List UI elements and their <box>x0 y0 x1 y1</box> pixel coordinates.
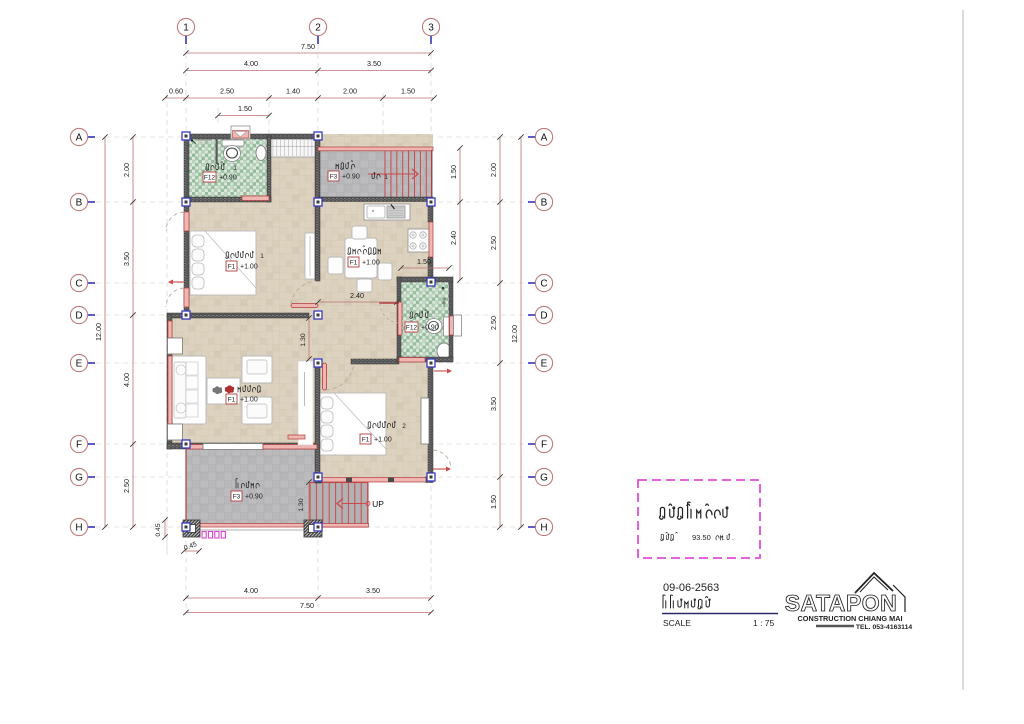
svg-text:B: B <box>76 197 83 208</box>
svg-text:C: C <box>75 278 82 289</box>
svg-text:1.50: 1.50 <box>238 104 252 113</box>
svg-text:D: D <box>540 310 547 321</box>
svg-text:3.50: 3.50 <box>122 252 131 266</box>
svg-text:2.40: 2.40 <box>350 291 364 300</box>
svg-text:C: C <box>540 278 547 289</box>
svg-text:A: A <box>76 132 83 143</box>
svg-text:3: 3 <box>428 22 434 33</box>
svg-text:F1: F1 <box>228 397 236 404</box>
svg-text:+0.90: +0.90 <box>245 494 263 501</box>
svg-text:1.50: 1.50 <box>401 87 415 96</box>
svg-text:1.50: 1.50 <box>417 257 431 266</box>
svg-text:+0.90: +0.90 <box>421 325 439 332</box>
svg-text:7.50: 7.50 <box>300 601 314 610</box>
svg-text:2.50: 2.50 <box>220 87 234 96</box>
svg-text:SCALE: SCALE <box>663 618 691 628</box>
svg-text:2.00: 2.00 <box>122 163 131 177</box>
svg-text:0.60: 0.60 <box>169 87 183 96</box>
svg-text:.: . <box>732 535 734 542</box>
svg-text:.: . <box>723 535 725 542</box>
svg-text:G: G <box>75 472 83 483</box>
svg-text:2: 2 <box>402 423 406 430</box>
svg-text:F12: F12 <box>406 325 418 332</box>
svg-text:G: G <box>540 472 548 483</box>
svg-text:4.00: 4.00 <box>244 59 258 68</box>
svg-text:1: 1 <box>384 174 388 181</box>
svg-text:F1: F1 <box>228 264 236 271</box>
svg-text:4.00: 4.00 <box>244 586 258 595</box>
svg-text:3.50: 3.50 <box>367 59 381 68</box>
svg-text:2.50: 2.50 <box>489 236 498 250</box>
svg-text:1.40: 1.40 <box>286 87 300 96</box>
svg-text:1.30: 1.30 <box>298 498 305 511</box>
svg-text:SATAPON: SATAPON <box>785 590 898 616</box>
svg-text:F: F <box>76 439 82 450</box>
svg-text:H: H <box>75 522 82 533</box>
svg-text:UP: UP <box>372 499 384 509</box>
svg-text:+1.00: +1.00 <box>240 264 258 271</box>
svg-text:3.50: 3.50 <box>489 397 498 411</box>
svg-text:+0.90: +0.90 <box>219 175 237 182</box>
svg-text:4.00: 4.00 <box>122 373 131 387</box>
svg-text:1.50: 1.50 <box>449 165 458 179</box>
svg-text:1 : 75: 1 : 75 <box>753 618 775 628</box>
svg-text:TEL. 053-4163114: TEL. 053-4163114 <box>856 624 913 631</box>
svg-text:2.50: 2.50 <box>122 479 131 493</box>
svg-text:CONSTRUCTION CHIANG MAI: CONSTRUCTION CHIANG MAI <box>798 614 903 623</box>
svg-text:09-06-2563: 09-06-2563 <box>663 582 719 594</box>
svg-text:+0.90: +0.90 <box>342 174 360 181</box>
svg-text:F3: F3 <box>233 494 241 501</box>
svg-text:F3: F3 <box>330 174 338 181</box>
svg-text:2: 2 <box>315 22 321 33</box>
svg-text:+1.00: +1.00 <box>362 260 380 267</box>
svg-text:F1: F1 <box>350 260 358 267</box>
svg-text:2.00: 2.00 <box>489 163 498 177</box>
svg-text:E: E <box>76 358 83 369</box>
svg-text:F: F <box>541 439 547 450</box>
svg-text:2.50: 2.50 <box>489 316 498 330</box>
svg-text:B: B <box>541 197 548 208</box>
svg-text:+1.00: +1.00 <box>374 437 392 444</box>
svg-text:1.30: 1.30 <box>300 333 307 346</box>
svg-text:F12: F12 <box>204 175 216 182</box>
svg-text:2.40: 2.40 <box>449 231 458 245</box>
svg-text:E: E <box>541 358 548 369</box>
svg-text:3.50: 3.50 <box>366 586 380 595</box>
svg-text:0.45: 0.45 <box>155 523 162 536</box>
svg-text:1.50: 1.50 <box>489 495 498 509</box>
svg-text:H: H <box>540 522 547 533</box>
svg-text:12.00: 12.00 <box>94 323 103 341</box>
svg-text:1: 1 <box>233 165 237 172</box>
svg-text:D: D <box>75 310 82 321</box>
svg-text:12.00: 12.00 <box>510 325 519 343</box>
svg-text:1: 1 <box>183 22 189 33</box>
svg-text:F1: F1 <box>362 437 370 444</box>
svg-text:93.50: 93.50 <box>692 533 711 542</box>
svg-text:2.00: 2.00 <box>343 87 357 96</box>
svg-text:7.50: 7.50 <box>301 42 315 51</box>
svg-text:1: 1 <box>260 253 264 260</box>
svg-text:A: A <box>541 132 548 143</box>
svg-text:+1.00: +1.00 <box>240 397 258 404</box>
